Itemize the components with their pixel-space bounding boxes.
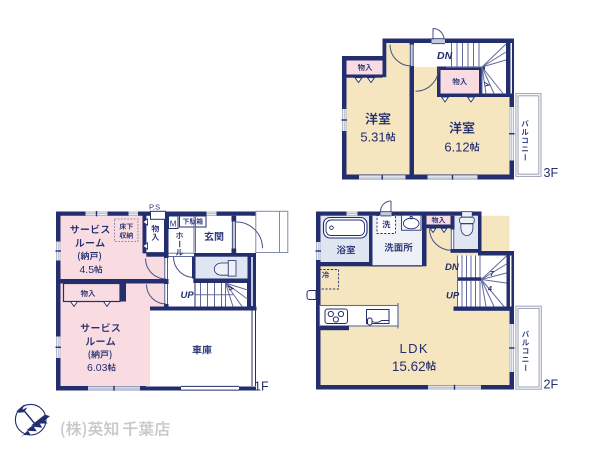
svg-text:1F: 1F [254, 380, 269, 394]
svg-text:P.S: P.S [149, 203, 160, 212]
svg-text:2F: 2F [544, 378, 559, 392]
svg-text:6.12: 6.12 [444, 140, 469, 155]
svg-text:LDK: LDK [400, 341, 430, 356]
svg-text:UP: UP [181, 290, 195, 301]
svg-text:15.62: 15.62 [392, 359, 426, 374]
svg-text:3F: 3F [544, 166, 559, 180]
svg-text:6.03: 6.03 [87, 362, 108, 374]
svg-text:4: 4 [487, 286, 492, 293]
svg-text:5.31: 5.31 [360, 130, 385, 145]
svg-text:DN: DN [445, 262, 460, 273]
svg-text:M: M [170, 220, 177, 229]
svg-text:UP: UP [446, 291, 460, 302]
svg-text:DN: DN [437, 50, 453, 62]
svg-text:4.5: 4.5 [79, 264, 94, 276]
